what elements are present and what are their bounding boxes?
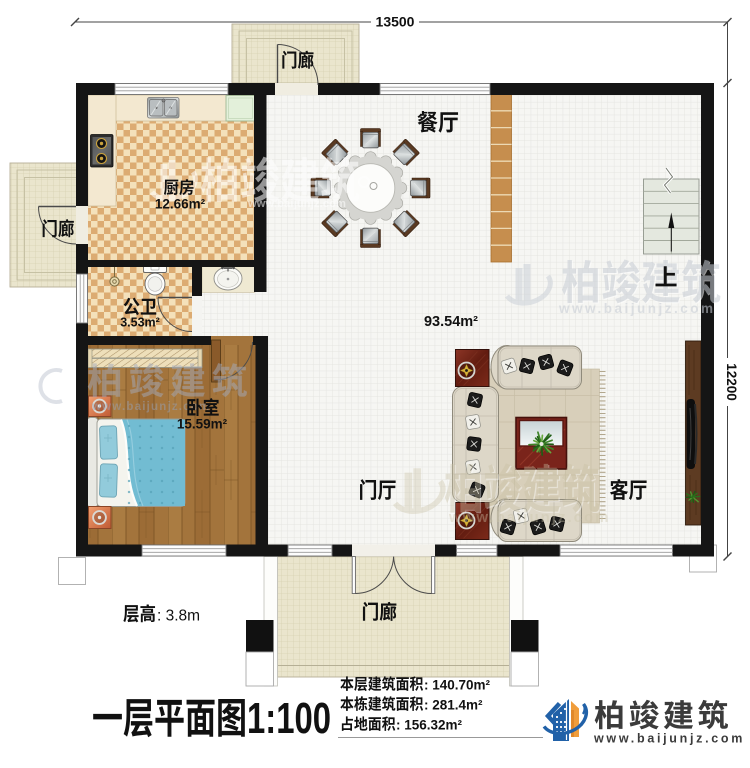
svg-text:93.54m²: 93.54m² xyxy=(424,314,478,330)
svg-text:www.baijunjz.com: www.baijunjz.com xyxy=(247,198,346,210)
svg-text:: 3.8m: : 3.8m xyxy=(157,608,200,625)
svg-text:13500: 13500 xyxy=(376,14,415,30)
svg-text:15.59m²: 15.59m² xyxy=(177,417,228,432)
svg-text:12.66m²: 12.66m² xyxy=(155,197,206,212)
svg-text:: 140.70m²: : 140.70m² xyxy=(424,678,491,693)
svg-text:: 156.32m²: : 156.32m² xyxy=(396,718,463,733)
svg-text:: 281.4m²: : 281.4m² xyxy=(424,698,483,713)
svg-text:www.baijunjz.com: www.baijunjz.com xyxy=(448,509,610,526)
svg-text:12200: 12200 xyxy=(724,363,739,401)
svg-text:1:100: 1:100 xyxy=(247,694,331,743)
svg-text:3.53m²: 3.53m² xyxy=(120,316,160,330)
svg-text:www.baijunjz.com: www.baijunjz.com xyxy=(593,732,745,746)
svg-text:www.baijunjz.com: www.baijunjz.com xyxy=(558,301,716,316)
